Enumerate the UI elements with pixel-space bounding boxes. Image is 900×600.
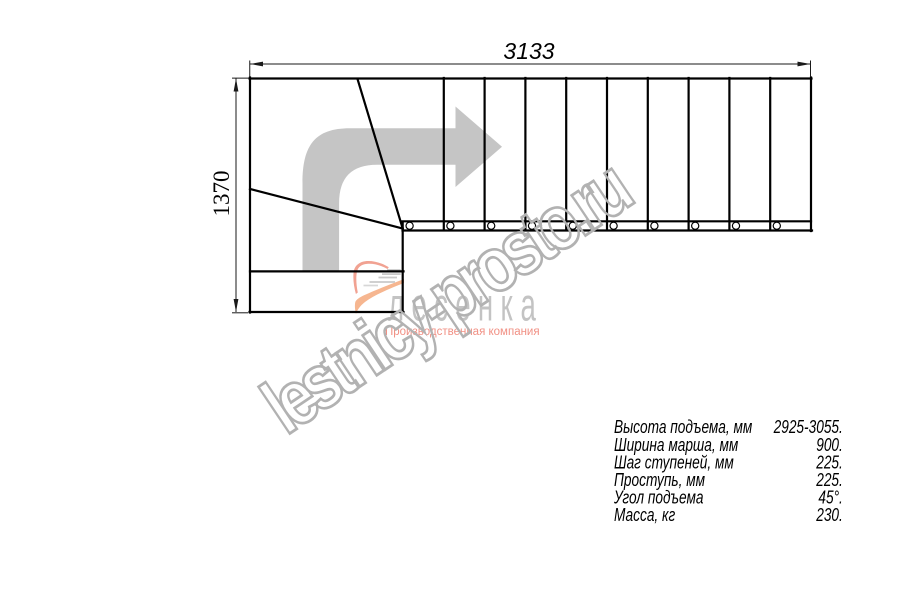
svg-text:3133: 3133 [503, 38, 554, 64]
svg-text:1370: 1370 [209, 171, 234, 217]
svg-text:Масса, кг: Масса, кг [614, 505, 675, 525]
svg-text:230.: 230. [815, 505, 842, 525]
